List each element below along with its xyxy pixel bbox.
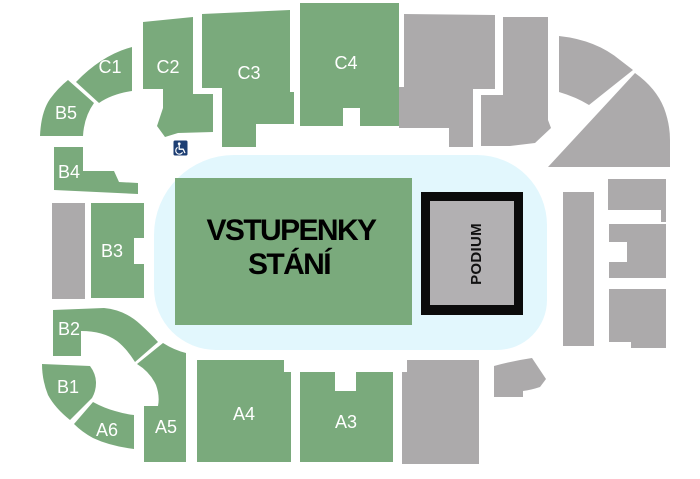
svg-text:C3: C3 xyxy=(237,63,260,83)
svg-text:A5: A5 xyxy=(155,417,177,437)
svg-text:C4: C4 xyxy=(334,53,357,73)
svg-text:VSTUPENKY: VSTUPENKY xyxy=(207,214,378,247)
svg-text:B5: B5 xyxy=(55,103,77,123)
svg-text:B3: B3 xyxy=(101,241,123,261)
svg-text:A4: A4 xyxy=(233,404,255,424)
svg-text:B4: B4 xyxy=(58,162,80,182)
svg-text:PODIUM: PODIUM xyxy=(468,223,485,285)
svg-text:A3: A3 xyxy=(335,412,357,432)
svg-text:STÁNÍ: STÁNÍ xyxy=(248,247,332,281)
svg-text:B1: B1 xyxy=(57,377,79,397)
svg-text:A6: A6 xyxy=(96,420,118,440)
svg-text:C1: C1 xyxy=(98,57,121,77)
svg-text:C2: C2 xyxy=(156,57,179,77)
svg-text:B2: B2 xyxy=(58,319,80,339)
